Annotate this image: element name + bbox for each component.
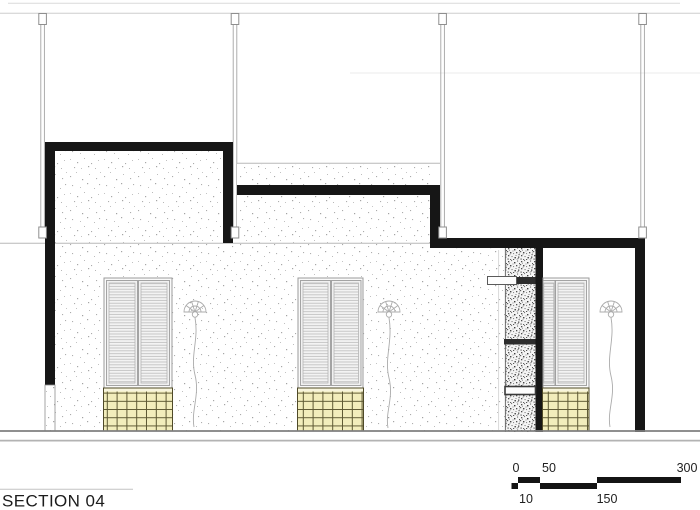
wall-lamp-3 bbox=[600, 301, 622, 427]
cut-wall-interior bbox=[536, 238, 544, 432]
cut-wall-right bbox=[635, 238, 645, 432]
window-shutter-3 bbox=[543, 278, 589, 388]
plaster-parapet-middle bbox=[237, 164, 430, 243]
glazed-tiles-1 bbox=[104, 388, 173, 431]
post-cap-top-3 bbox=[439, 14, 447, 25]
scale-label-150: 150 bbox=[597, 492, 618, 506]
cut-roof-left bbox=[45, 142, 233, 151]
scale-segment-50-150 bbox=[540, 483, 597, 489]
scale-bar: 0 50 300 10 150 bbox=[512, 461, 698, 506]
column-post-2 bbox=[233, 13, 237, 227]
scale-label-50: 50 bbox=[542, 461, 556, 475]
scale-label-300: 300 bbox=[677, 461, 698, 475]
post-cap-bottom-4 bbox=[639, 227, 647, 238]
window-shutter-2 bbox=[298, 278, 363, 388]
section-drawing-canvas: SECTION 04 0 50 300 10 150 bbox=[0, 0, 700, 510]
column-post-3 bbox=[441, 13, 445, 227]
cut-wall-left bbox=[45, 142, 55, 385]
lamp-cable-3 bbox=[609, 318, 612, 428]
post-cap-top-1 bbox=[39, 14, 47, 25]
post-cap-bottom-3 bbox=[439, 227, 447, 238]
drawing-title: SECTION 04 bbox=[2, 492, 105, 510]
scale-label-10: 10 bbox=[519, 492, 533, 506]
column-post-4 bbox=[641, 13, 645, 227]
cut-wall-left-footing bbox=[45, 385, 55, 431]
slab-bar-middle-dark bbox=[504, 339, 536, 345]
slab-bar-upper-box bbox=[488, 277, 517, 285]
post-cap-bottom-2 bbox=[231, 227, 239, 238]
glazed-tiles-2 bbox=[298, 388, 364, 431]
section-drawing: SECTION 04 0 50 300 10 150 bbox=[0, 0, 700, 510]
slab-bar-lower-box bbox=[505, 387, 536, 395]
cut-roof-middle bbox=[237, 185, 440, 195]
post-cap-top-2 bbox=[231, 14, 239, 25]
glazed-tiles-3 bbox=[543, 388, 590, 431]
plaster-wall-right-band bbox=[430, 248, 505, 431]
scale-segment-10-50 bbox=[518, 477, 540, 483]
scale-segment-150-300 bbox=[597, 477, 681, 483]
post-cap-bottom-1 bbox=[39, 227, 47, 238]
post-cap-top-4 bbox=[639, 14, 647, 25]
scale-label-0: 0 bbox=[513, 461, 520, 475]
column-post-1 bbox=[41, 13, 45, 227]
scale-segment-0-10 bbox=[512, 483, 519, 489]
window-shutter-1 bbox=[104, 278, 172, 388]
